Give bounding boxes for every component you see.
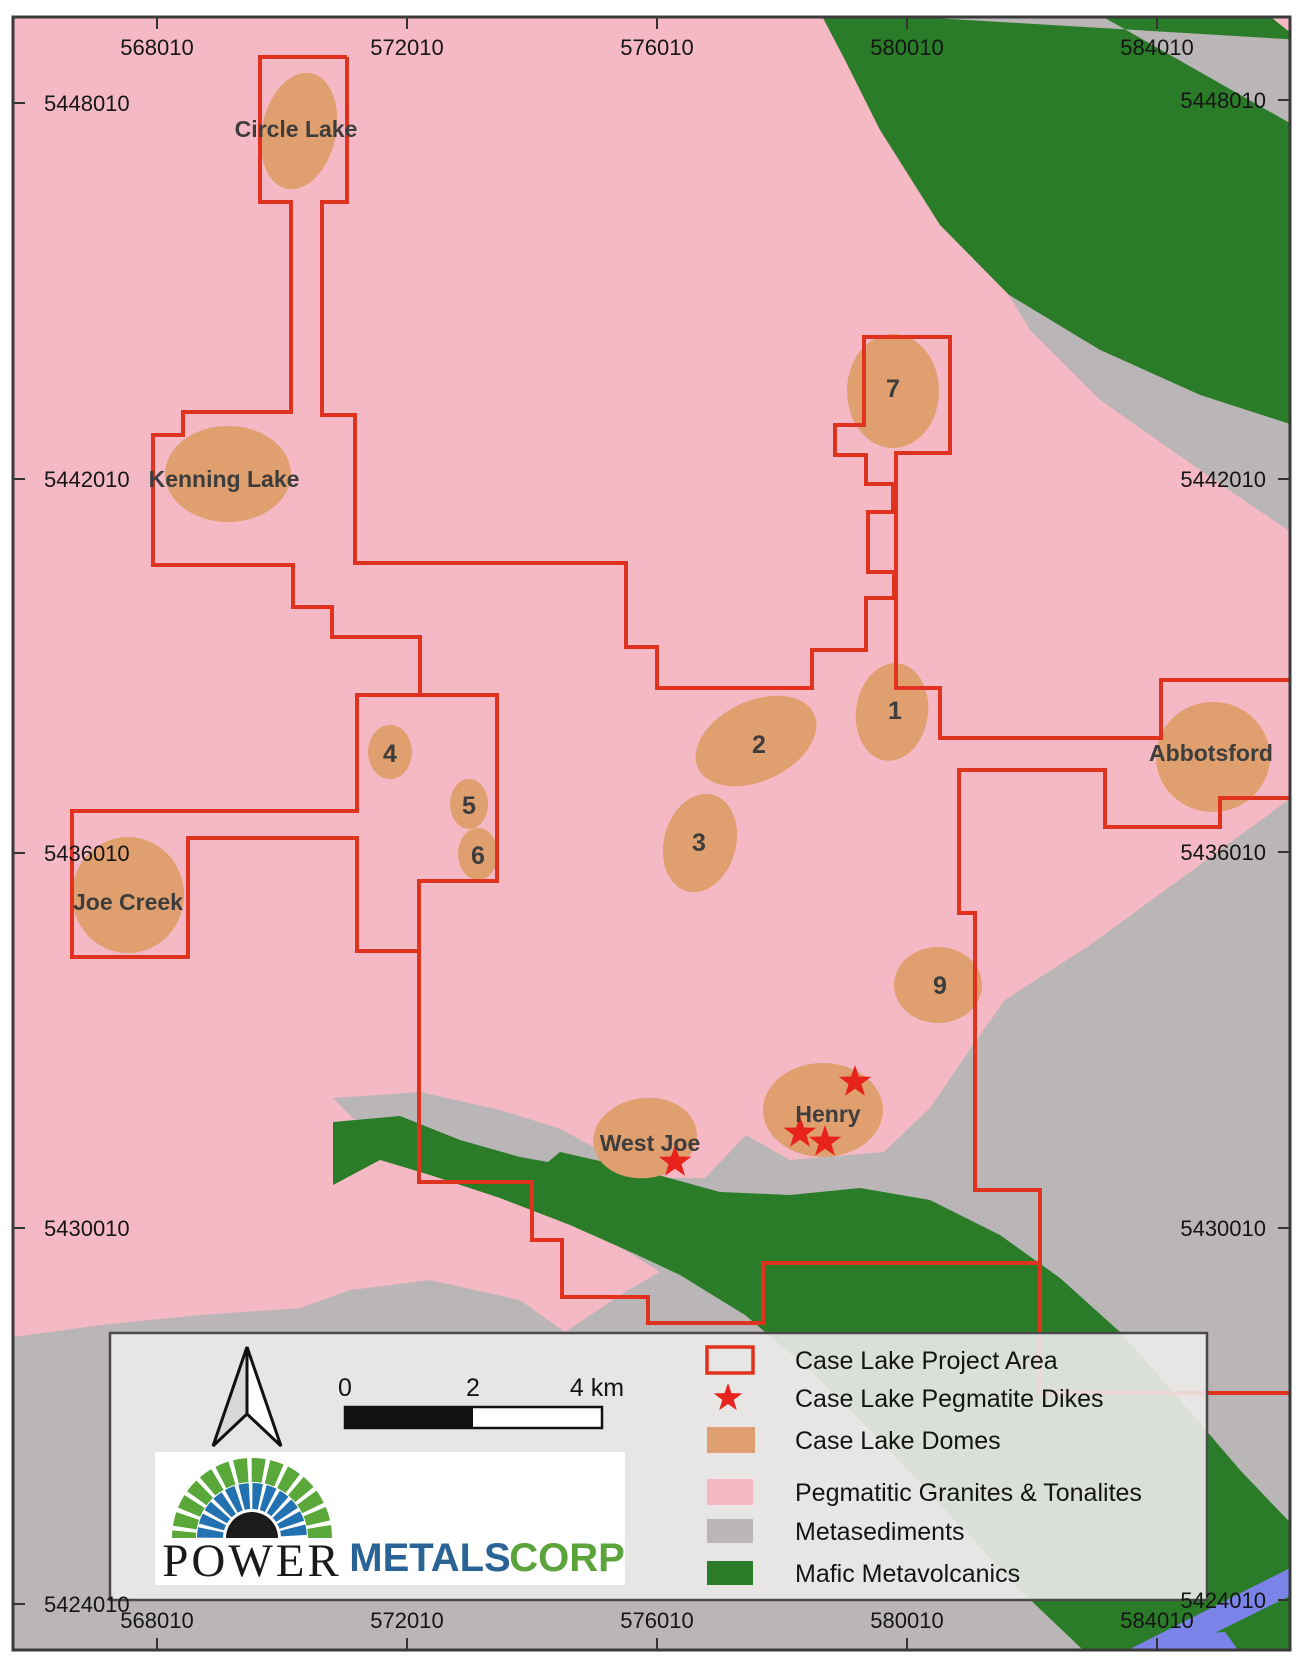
legend: 0 2 4 km Case Lake Project Area Case Lak… — [110, 1333, 1207, 1606]
metasediments-swatch-icon — [707, 1519, 753, 1543]
dome-label-dome-7: 7 — [886, 375, 900, 403]
axis-top-label: 572010 — [370, 35, 443, 60]
axis-right-label: 5442010 — [1180, 467, 1266, 492]
axis-bottom-label: 572010 — [370, 1608, 443, 1633]
case-lake-geology-map: Circle LakeKenning LakeJoe CreekAbbotsfo… — [0, 0, 1303, 1675]
axis-left-label: 5430010 — [44, 1216, 130, 1241]
dome-label-dome-2: 2 — [752, 731, 766, 759]
dome-label-dome-6: 6 — [471, 842, 485, 870]
axis-right-label: 5424010 — [1180, 1588, 1266, 1613]
power-metals-logo: POWER METALS CORP — [155, 1452, 625, 1606]
dome-label-abbotsford: Abbotsford — [1149, 740, 1273, 766]
axis-top-label: 568010 — [120, 35, 193, 60]
scale-label-0: 0 — [338, 1374, 352, 1402]
logo-text-corp: CORP — [509, 1536, 625, 1580]
dome-label-west-joe: West Joe — [600, 1130, 701, 1156]
metavolcanics-swatch-icon — [707, 1561, 753, 1585]
axis-left-label: 5448010 — [44, 91, 130, 116]
legend-item-label: Case Lake Project Area — [795, 1347, 1058, 1375]
logo-text-metals: METALS — [349, 1536, 510, 1580]
dome-label-dome-1: 1 — [888, 697, 902, 725]
axis-top-label: 580010 — [870, 35, 943, 60]
axis-left-label: 5424010 — [44, 1592, 130, 1617]
dome-label-kenning-lake: Kenning Lake — [149, 466, 300, 492]
axis-top-label: 584010 — [1120, 35, 1193, 60]
granites-swatch-icon — [707, 1479, 753, 1505]
legend-item-domes: Case Lake Domes — [707, 1427, 1001, 1455]
map-figure: Circle LakeKenning LakeJoe CreekAbbotsfo… — [0, 0, 1303, 1675]
logo-text-power: POWER — [162, 1535, 342, 1587]
legend-item-label: Pegmatitic Granites & Tonalites — [795, 1479, 1142, 1507]
dome-label-circle-lake: Circle Lake — [235, 116, 358, 142]
axis-left-label: 5442010 — [44, 467, 130, 492]
scale-label-2: 2 — [466, 1374, 480, 1402]
legend-item-label: Metasediments — [795, 1518, 965, 1546]
dome-label-henry: Henry — [795, 1101, 860, 1127]
axis-right-label: 5430010 — [1180, 1216, 1266, 1241]
axis-right-label: 5436010 — [1180, 840, 1266, 865]
axis-bottom-label: 580010 — [870, 1608, 943, 1633]
legend-item-metasediments: Metasediments — [707, 1518, 965, 1546]
axis-bottom-label: 568010 — [120, 1608, 193, 1633]
axis-left-label: 5436010 — [44, 841, 130, 866]
dome-label-dome-4: 4 — [383, 740, 397, 768]
legend-item-label: Case Lake Domes — [795, 1427, 1001, 1455]
dome-label-dome-3: 3 — [692, 829, 706, 857]
dome-label-joe-creek: Joe Creek — [73, 889, 183, 915]
dome-label-dome-9: 9 — [933, 972, 947, 1000]
legend-item-label: Case Lake Pegmatite Dikes — [795, 1385, 1103, 1413]
legend-item-label: Mafic Metavolcanics — [795, 1560, 1020, 1588]
scale-label-4km: 4 km — [570, 1374, 624, 1402]
dome-label-dome-5: 5 — [462, 792, 476, 820]
domes-swatch-icon — [707, 1427, 755, 1453]
axis-bottom-label: 576010 — [620, 1608, 693, 1633]
axis-right-label: 5448010 — [1180, 88, 1266, 113]
axis-top-label: 576010 — [620, 35, 693, 60]
